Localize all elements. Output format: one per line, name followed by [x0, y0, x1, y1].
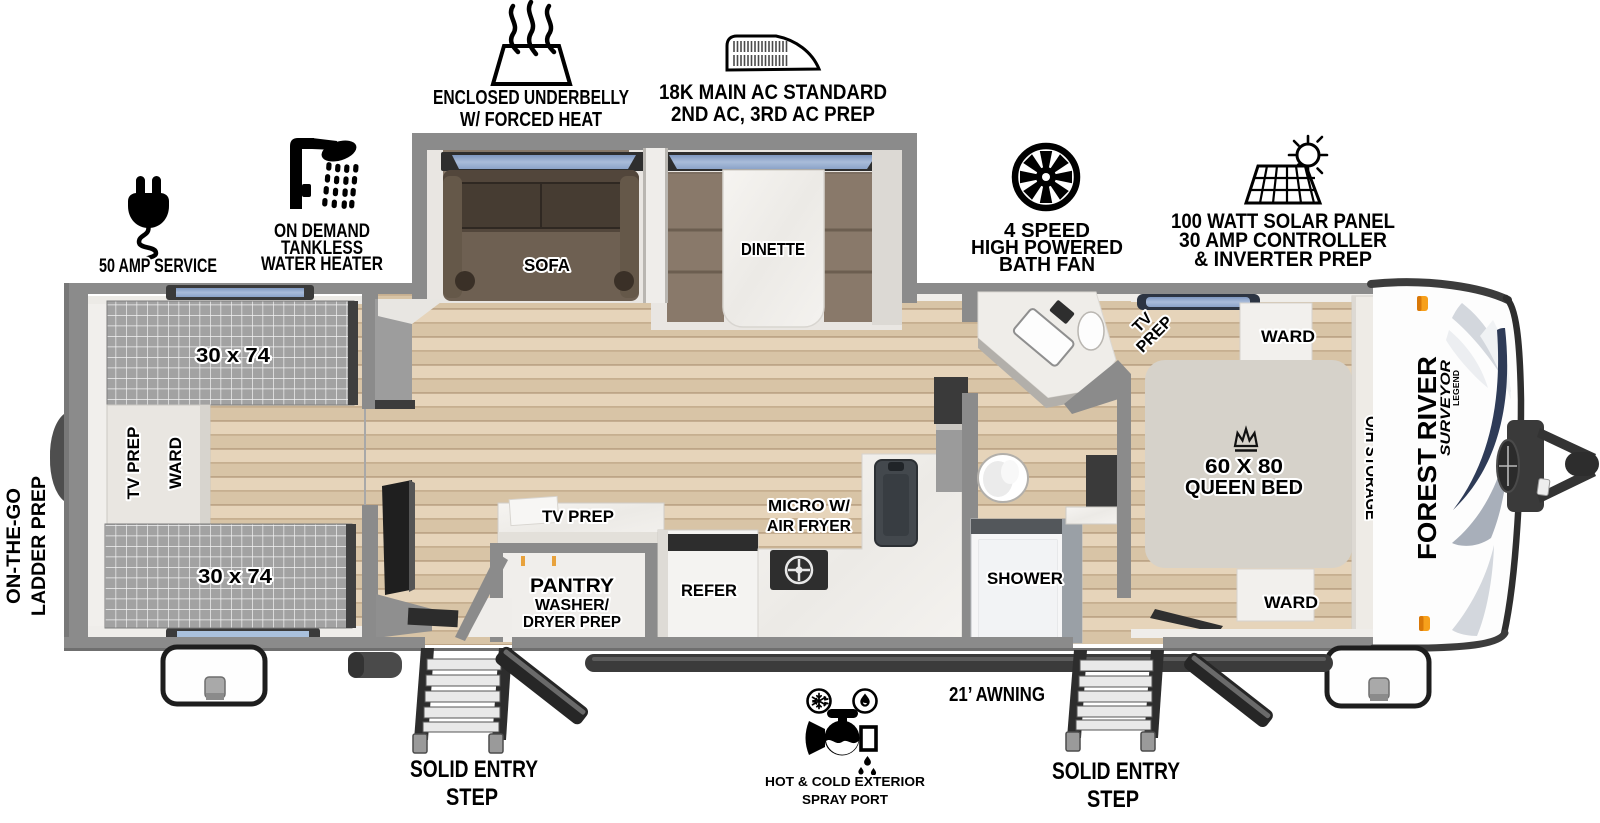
svg-text:18K MAIN AC STANDARD: 18K MAIN AC STANDARD — [659, 81, 887, 104]
svg-text:SOLID ENTRY: SOLID ENTRY — [410, 756, 538, 783]
svg-text:LADDER PREP: LADDER PREP — [29, 476, 50, 616]
svg-text:QUEEN BED: QUEEN BED — [1185, 477, 1303, 499]
svg-text:30 x 74: 30 x 74 — [196, 345, 271, 367]
svg-text:WARD: WARD — [1264, 593, 1318, 612]
svg-text:MICRO W/: MICRO W/ — [768, 498, 851, 515]
svg-text:LEGEND: LEGEND — [1452, 370, 1461, 406]
svg-text:& INVERTER PREP: & INVERTER PREP — [1194, 248, 1372, 271]
svg-text:W/ FORCED HEAT: W/ FORCED HEAT — [460, 109, 602, 131]
svg-text:REFER: REFER — [681, 581, 737, 600]
svg-text:TV PREP: TV PREP — [542, 507, 614, 526]
svg-text:30 x 74: 30 x 74 — [198, 566, 273, 588]
svg-text:SPRAY PORT: SPRAY PORT — [802, 792, 888, 807]
svg-text:SOLID ENTRY: SOLID ENTRY — [1052, 758, 1180, 785]
svg-text:SOFA: SOFA — [524, 255, 570, 275]
svg-text:AIR FRYER: AIR FRYER — [767, 518, 851, 535]
svg-text:PANTRY: PANTRY — [530, 575, 614, 597]
svg-text:STEP: STEP — [446, 784, 498, 811]
svg-text:50 AMP SERVICE: 50 AMP SERVICE — [99, 255, 217, 277]
svg-text:DINETTE: DINETTE — [741, 239, 805, 259]
svg-text:WATER HEATER: WATER HEATER — [261, 253, 383, 275]
svg-text:21’ AWNING: 21’ AWNING — [949, 684, 1045, 706]
svg-text:ENCLOSED UNDERBELLY: ENCLOSED UNDERBELLY — [433, 87, 630, 109]
svg-text:WASHER/: WASHER/ — [535, 597, 610, 614]
svg-text:HOT & COLD EXTERIOR: HOT & COLD EXTERIOR — [765, 774, 926, 789]
svg-text:BATH FAN: BATH FAN — [999, 254, 1095, 276]
svg-text:STEP: STEP — [1087, 786, 1139, 813]
svg-text:ON-THE-GO: ON-THE-GO — [4, 488, 25, 604]
svg-text:60 X 80: 60 X 80 — [1205, 456, 1283, 478]
svg-text:DRYER PREP: DRYER PREP — [523, 614, 621, 631]
svg-text:SHOWER: SHOWER — [987, 569, 1063, 588]
svg-text:WARD: WARD — [1261, 327, 1315, 346]
svg-text:SURVEYOR: SURVEYOR — [1437, 359, 1453, 456]
svg-text:TV PREP: TV PREP — [124, 427, 143, 500]
svg-text:WARD: WARD — [166, 437, 185, 489]
svg-text:2ND AC, 3RD AC PREP: 2ND AC, 3RD AC PREP — [671, 103, 875, 126]
